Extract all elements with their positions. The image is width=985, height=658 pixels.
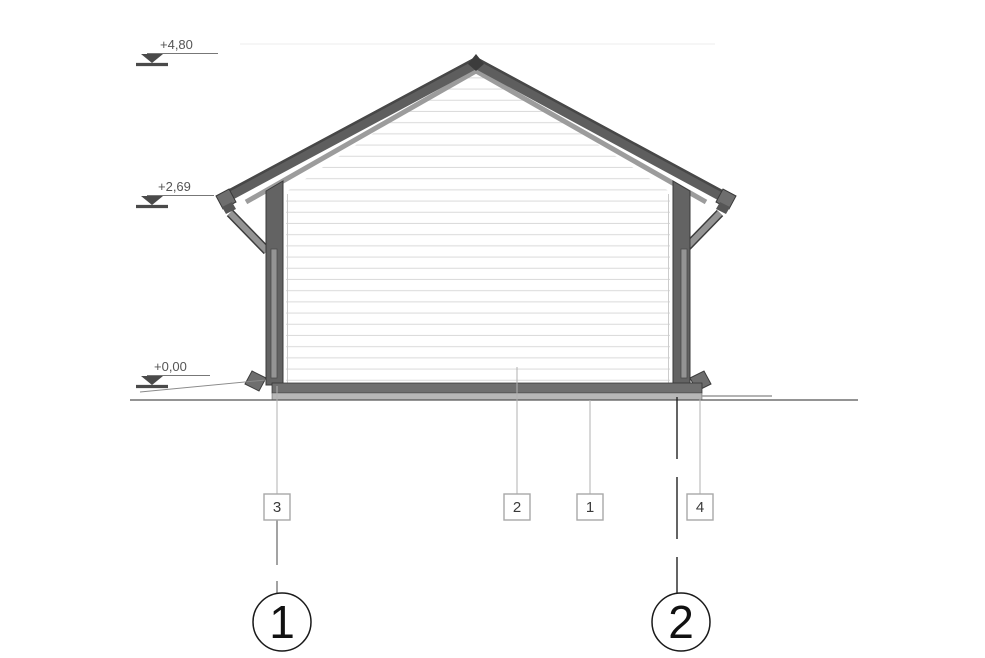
elevation-marker-480: +4,80 <box>136 37 218 65</box>
floor-slab <box>272 383 702 400</box>
elevation-marker-000: +0,00 <box>136 359 210 387</box>
grid-bubble-2: 2 <box>652 593 710 651</box>
elevation-label-480: +4,80 <box>160 37 193 52</box>
slab-lower-band <box>272 393 702 400</box>
elevation-triangle-icon-000 <box>141 376 163 385</box>
callout-label-2: 2 <box>513 499 521 516</box>
elevation-triangle-icon-480 <box>141 54 163 63</box>
gable-siding-wall <box>286 64 670 383</box>
elevation-label-000: +0,00 <box>154 359 187 374</box>
grid-bubble-1: 1 <box>253 593 311 651</box>
left-eave-assembly <box>216 189 267 251</box>
right-downspout-pipe <box>681 249 687 378</box>
callout-label-3: 3 <box>273 499 281 516</box>
callout-tag-3: 3 <box>264 494 290 520</box>
left-downspout-pipe <box>271 249 277 378</box>
elevation-label-269: +2,69 <box>158 179 191 194</box>
grid-bubble-label-1: 1 <box>269 596 295 648</box>
right-eave-assembly <box>683 189 736 251</box>
callout-tag-1: 1 <box>577 494 603 520</box>
architectural-section-drawing: +4,80 +2,69 +0,00 3 2 1 4 <box>0 0 985 658</box>
left-downspout-diagonal <box>230 213 267 251</box>
slab-upper-band <box>272 383 702 393</box>
callout-tag-2: 2 <box>504 494 530 520</box>
callout-tag-4: 4 <box>687 494 713 520</box>
elevation-triangle-icon-269 <box>141 196 163 205</box>
callout-label-1: 1 <box>586 499 594 516</box>
grid-bubble-label-2: 2 <box>668 596 694 648</box>
section-drawing-svg: +4,80 +2,69 +0,00 3 2 1 4 <box>0 0 985 658</box>
callout-label-4: 4 <box>696 499 704 516</box>
elevation-marker-269: +2,69 <box>136 179 214 207</box>
